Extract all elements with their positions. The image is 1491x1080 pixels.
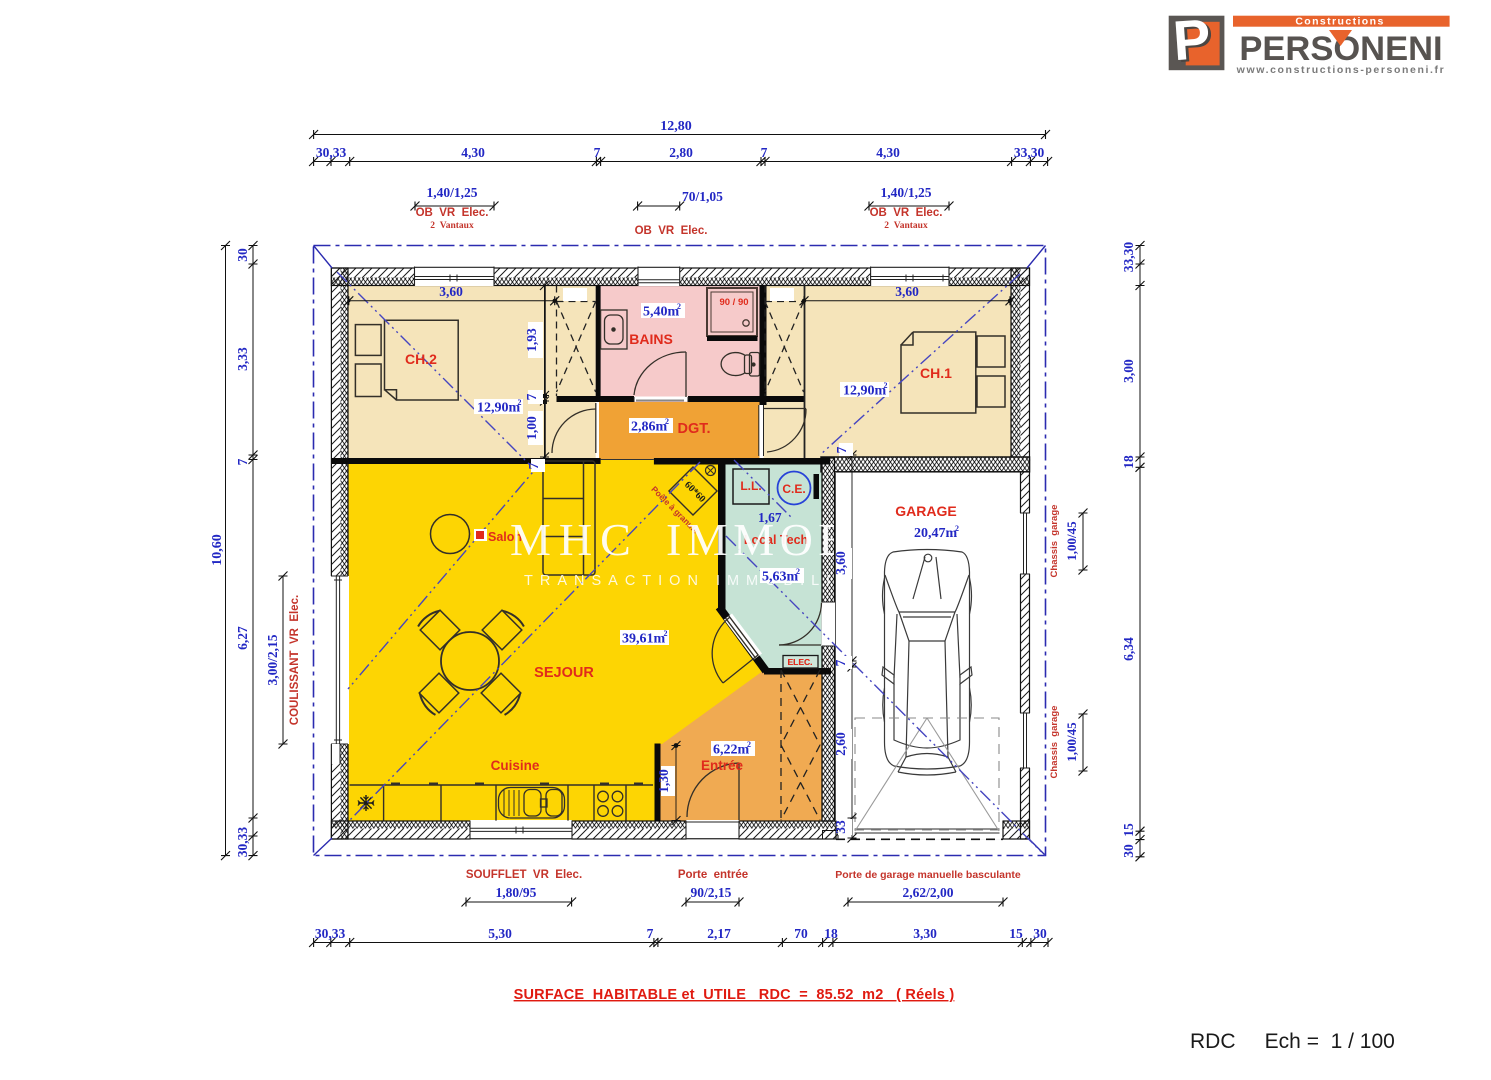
svg-text:2,60: 2,60 <box>833 732 848 756</box>
svg-text:30,33: 30,33 <box>315 926 346 941</box>
svg-text:3,00/2,15: 3,00/2,15 <box>265 634 280 685</box>
svg-text:7: 7 <box>833 659 848 666</box>
svg-text:2,80: 2,80 <box>669 145 693 160</box>
svg-text:30,33: 30,33 <box>235 827 250 858</box>
svg-text:2: 2 <box>518 398 522 407</box>
svg-text:CH.1: CH.1 <box>920 365 952 381</box>
svg-text:2: 2 <box>747 740 751 749</box>
svg-text:2: 2 <box>665 417 669 426</box>
svg-text:www.constructions-personeni.fr: www.constructions-personeni.fr <box>1236 64 1446 76</box>
svg-text:10,60: 10,60 <box>210 534 225 566</box>
svg-text:7: 7 <box>834 446 849 453</box>
svg-text:12,90m: 12,90m <box>843 384 887 399</box>
svg-text:CH.2: CH.2 <box>405 351 437 367</box>
svg-text:30: 30 <box>1033 926 1047 941</box>
svg-text:2,86m: 2,86m <box>631 420 668 435</box>
svg-text:3,00: 3,00 <box>1121 359 1136 383</box>
svg-text:1,80/95: 1,80/95 <box>496 885 537 900</box>
svg-text:90/2,15: 90/2,15 <box>691 885 732 900</box>
svg-text:7: 7 <box>594 145 601 160</box>
svg-text:OB VR Elec.: OB VR Elec. <box>416 207 489 219</box>
svg-text:4,30: 4,30 <box>876 145 900 160</box>
svg-text:70: 70 <box>794 926 808 941</box>
svg-text:C.E.: C.E. <box>782 482 805 496</box>
svg-text:30: 30 <box>235 248 250 262</box>
svg-text:Chassis garage: Chassis garage <box>1049 505 1060 578</box>
svg-text:15: 15 <box>1009 926 1023 941</box>
svg-text:7: 7 <box>761 145 768 160</box>
svg-text:15: 15 <box>1121 823 1136 837</box>
svg-text:SEJOUR: SEJOUR <box>534 665 594 681</box>
svg-text:1,40/1,25: 1,40/1,25 <box>880 185 931 200</box>
svg-text:90 / 90: 90 / 90 <box>719 297 748 308</box>
svg-text:Cuisine: Cuisine <box>491 758 540 773</box>
svg-text:2,62/2,00: 2,62/2,00 <box>902 885 953 900</box>
svg-text:7: 7 <box>647 926 654 941</box>
svg-text:5,40m: 5,40m <box>643 305 680 320</box>
svg-text:3,60: 3,60 <box>833 551 848 575</box>
svg-text:P: P <box>1171 7 1213 72</box>
svg-text:1,00/45: 1,00/45 <box>1064 521 1079 561</box>
svg-text:39,61m: 39,61m <box>622 632 666 647</box>
svg-text:1,30: 1,30 <box>656 769 671 793</box>
svg-text:1,40/1,25: 1,40/1,25 <box>426 185 477 200</box>
svg-text:12,90m: 12,90m <box>477 401 521 416</box>
svg-text:Entrée: Entrée <box>701 758 744 773</box>
svg-text:GARAGE: GARAGE <box>895 503 956 519</box>
svg-text:6,27: 6,27 <box>235 626 250 650</box>
svg-text:33: 33 <box>833 820 848 834</box>
svg-text:Chassis garage: Chassis garage <box>1049 706 1060 779</box>
svg-text:2: 2 <box>884 381 888 390</box>
svg-text:18: 18 <box>1121 455 1136 469</box>
svg-text:7: 7 <box>524 393 539 400</box>
svg-text:20,47m: 20,47m <box>914 526 958 541</box>
svg-text:2: 2 <box>677 302 681 311</box>
svg-text:3,60: 3,60 <box>439 284 463 299</box>
svg-text:33,30: 33,30 <box>1121 242 1136 273</box>
svg-text:2: 2 <box>955 524 959 533</box>
svg-text:Porte entrée: Porte entrée <box>678 869 748 881</box>
svg-text:1,93: 1,93 <box>524 328 539 352</box>
svg-text:6,34: 6,34 <box>1121 637 1136 661</box>
svg-text:2: 2 <box>664 629 668 638</box>
svg-text:2 Vantaux: 2 Vantaux <box>430 221 474 231</box>
svg-text:3,30: 3,30 <box>913 926 937 941</box>
svg-text:COULISSANT VR Elec.: COULISSANT VR Elec. <box>289 595 301 725</box>
svg-text:3,60: 3,60 <box>895 284 919 299</box>
svg-text:ELEC.: ELEC. <box>787 657 812 667</box>
svg-text:2: 2 <box>796 567 800 576</box>
svg-text:6,22m: 6,22m <box>713 743 750 758</box>
svg-text:2,17: 2,17 <box>707 926 731 941</box>
svg-text:Constructions: Constructions <box>1295 16 1384 28</box>
svg-text:TRANSACTION IMMOBILIERE: TRANSACTION IMMOBILIERE <box>524 573 888 589</box>
svg-text:30: 30 <box>1121 844 1136 858</box>
svg-text:OB VR Elec.: OB VR Elec. <box>635 225 708 237</box>
svg-text:4,30: 4,30 <box>461 145 485 160</box>
svg-text:30,33: 30,33 <box>316 145 347 160</box>
svg-text:70/1,05: 70/1,05 <box>682 189 723 204</box>
svg-text:7: 7 <box>526 462 541 469</box>
svg-text:1,00: 1,00 <box>524 416 539 440</box>
svg-text:OB VR Elec.: OB VR Elec. <box>870 207 943 219</box>
svg-text:SURFACE HABITABLE et UTILE: SURFACE HABITABLE et UTILE RDC = 85.52 m… <box>514 987 955 1003</box>
svg-text:1,00/45: 1,00/45 <box>1064 722 1079 762</box>
svg-text:33,30: 33,30 <box>1014 145 1045 160</box>
svg-text:L.L.: L.L. <box>740 479 761 493</box>
svg-text:Porte de garage manuelle bascu: Porte de garage manuelle basculante <box>835 869 1021 881</box>
svg-text:SOUFFLET VR Elec.: SOUFFLET VR Elec. <box>466 869 582 881</box>
svg-text:7: 7 <box>235 458 250 465</box>
svg-text:5,63m: 5,63m <box>762 570 799 585</box>
svg-text:RDC Ech = 1 / 100: RDC Ech = 1 / 100 <box>1190 1030 1395 1053</box>
svg-text:2 Vantaux: 2 Vantaux <box>884 221 928 231</box>
svg-text:BAINS: BAINS <box>629 331 673 347</box>
svg-text:12,80: 12,80 <box>660 119 692 134</box>
svg-text:3,33: 3,33 <box>235 347 250 371</box>
svg-text:5,30: 5,30 <box>488 926 512 941</box>
svg-text:18: 18 <box>824 926 838 941</box>
svg-text:DGT.: DGT. <box>677 421 710 437</box>
